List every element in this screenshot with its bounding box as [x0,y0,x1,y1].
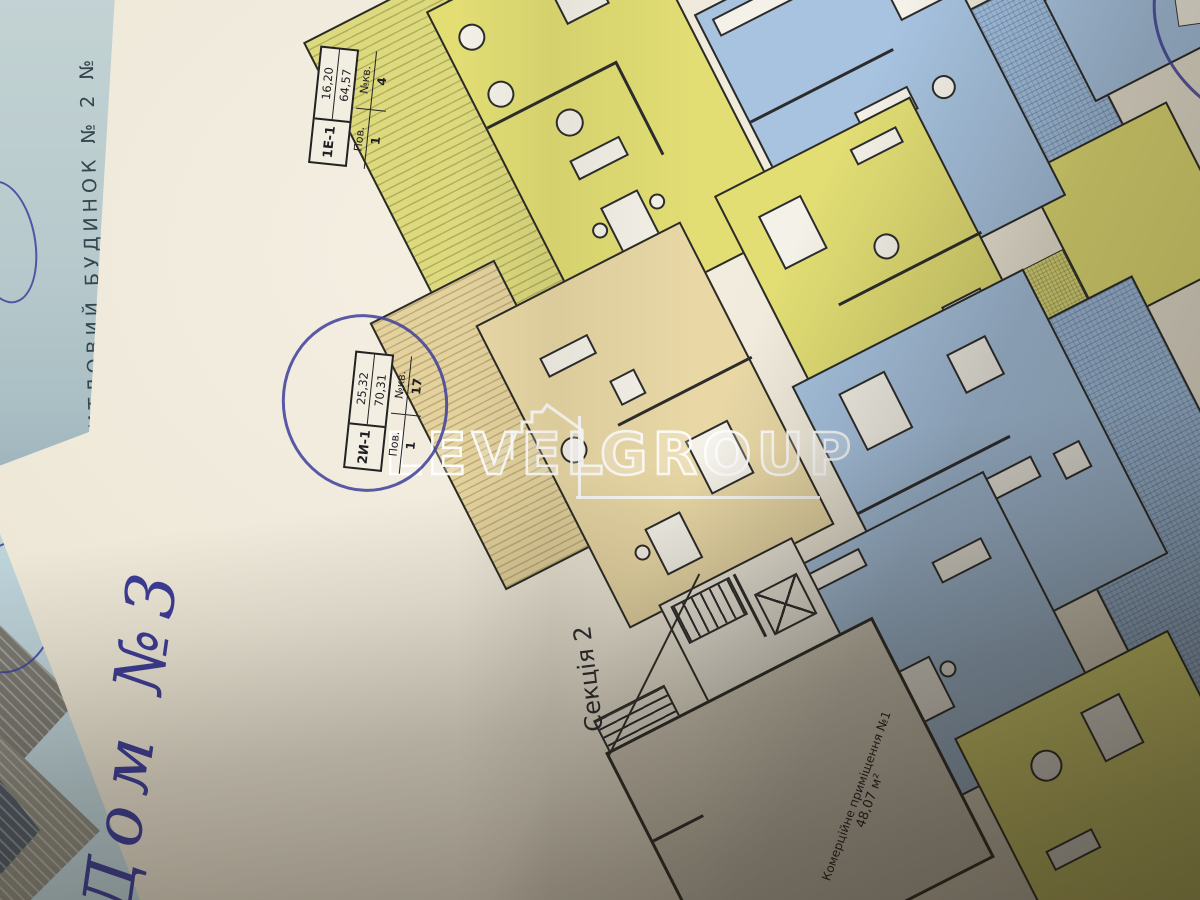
furniture-wardrobe [849,126,904,166]
furniture-sofa [1045,828,1101,871]
watermark-divider-bar [578,416,581,498]
partition-wall [653,814,704,842]
furniture-armchair [454,19,490,55]
pen-scribble-left [0,175,46,308]
furniture-table-round [869,229,904,264]
house-logo-icon [498,392,590,462]
unit-code: 1Е-1 [310,117,349,164]
furniture-table [946,335,1005,394]
furniture-bed [541,0,610,25]
photo-of-floor-plan-sheet: ЖИТЛОВИЙ БУДИНОК № 2 № [0,0,1200,900]
furniture-table [1052,440,1092,480]
unit-label-1E1: 1Е-1 16,20 64,57 Пов. 1 №кв. 4 [308,46,392,171]
furniture-bed [758,195,828,270]
furniture-sofa [569,136,629,181]
elevator-shaft [754,573,818,636]
furniture-table-round [1025,744,1068,787]
furniture-table [609,368,647,406]
partition-wall [838,231,982,306]
watermark-group: GROUP [600,420,856,488]
furniture-dining-table [644,511,703,575]
furniture-bed [1080,693,1145,763]
furniture-armchair [551,104,589,142]
furniture-armchair [483,76,519,112]
furniture-sofa [539,334,597,378]
furniture-chair [632,542,654,564]
furniture-bed [873,0,946,21]
furniture-kitchen-counter [712,0,803,37]
furniture-sofa [931,537,992,584]
furniture-table-round [928,71,960,103]
watermark-underline [576,496,820,499]
furniture-chair [646,191,668,213]
